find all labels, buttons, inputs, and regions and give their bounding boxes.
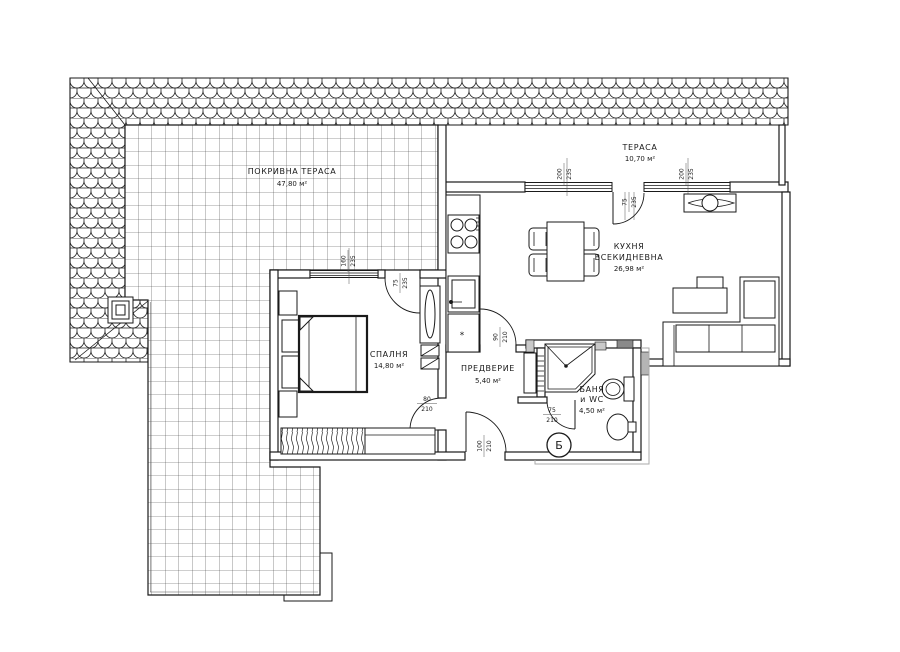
svg-text:210: 210 (486, 440, 493, 452)
window-bedroom (310, 271, 378, 278)
section-marker: Б (547, 433, 571, 457)
svg-text:4,50 м²: 4,50 м² (579, 407, 605, 415)
wall-bedroom-north-b (378, 270, 385, 278)
wardrobe (281, 428, 435, 454)
svg-text:235: 235 (631, 196, 638, 208)
window-terrace-right (644, 183, 730, 192)
svg-text:БАНЯ: БАНЯ (580, 385, 605, 394)
kitchen-sink (448, 276, 479, 312)
pier-east-shaft (641, 352, 649, 375)
wall-divider-upper (438, 125, 446, 398)
svg-text:47,80 м²: 47,80 м² (277, 180, 308, 188)
svg-text:210: 210 (421, 406, 433, 413)
svg-text:210: 210 (546, 417, 558, 424)
toilet (602, 377, 634, 401)
svg-text:10,70 м²: 10,70 м² (625, 155, 656, 163)
wall-kitchen-north-left (443, 182, 525, 192)
floor-plan-drawing: * (0, 0, 900, 652)
svg-text:160: 160 (341, 255, 348, 267)
cabinet-mirror (425, 290, 435, 338)
nightstand (282, 320, 299, 352)
radiator-living (684, 194, 736, 212)
bed (299, 316, 367, 392)
svg-text:КУХНЯ: КУХНЯ (614, 242, 645, 251)
boiler-symbol: * (460, 331, 465, 341)
wall-bedroom-north-c (420, 270, 446, 278)
wall-east-exterior (782, 192, 790, 366)
kitchen-cabinet-boiler: * (448, 314, 479, 352)
room-label-bathroom: БАНЯ и WC 4,50 м² (579, 385, 605, 415)
svg-text:СПАЛНЯ: СПАЛНЯ (370, 350, 408, 359)
svg-text:5,40 м²: 5,40 м² (475, 377, 501, 385)
nightstand (282, 356, 299, 388)
svg-text:200: 200 (557, 168, 564, 180)
wall-niche-bottom (279, 391, 297, 417)
svg-text:80: 80 (423, 396, 431, 403)
svg-text:100: 100 (477, 440, 484, 452)
svg-text:235: 235 (402, 277, 409, 289)
stove (448, 215, 479, 253)
svg-text:235: 235 (566, 168, 573, 180)
svg-text:14,80 м²: 14,80 м² (374, 362, 405, 370)
svg-text:235: 235 (688, 168, 695, 180)
wall-south-bath (505, 452, 641, 460)
floor-plan-canvas: * (0, 0, 900, 652)
pier-shower-corner (595, 342, 606, 350)
svg-text:ПОКРИВНА ТЕРАСА: ПОКРИВНА ТЕРАСА (248, 167, 337, 176)
section-marker-letter: Б (555, 439, 563, 452)
svg-text:и WC: и WC (580, 395, 604, 404)
svg-text:ТЕРАСА: ТЕРАСА (622, 143, 658, 152)
svg-text:75: 75 (393, 279, 400, 287)
chimney (108, 297, 133, 323)
window-terrace-left (525, 183, 612, 192)
wall-terrace-east (779, 125, 785, 185)
wall-bathroom-west (537, 348, 545, 397)
pier-bath-northwest (526, 340, 534, 352)
wall-bedroom-west (270, 270, 278, 460)
svg-text:ВСЕКИДНЕВНА: ВСЕКИДНЕВНА (595, 253, 664, 262)
svg-text:90: 90 (493, 333, 500, 341)
svg-text:210: 210 (502, 331, 509, 343)
pier-bath-northeast (617, 340, 633, 348)
wall-niche-top (279, 291, 297, 315)
sink-faucet (628, 422, 636, 432)
dining-table (547, 222, 584, 281)
svg-text:ПРЕДВЕРИЕ: ПРЕДВЕРИЕ (461, 364, 515, 373)
svg-text:200: 200 (679, 168, 686, 180)
svg-text:75: 75 (548, 407, 556, 414)
wall-bathroom-entry-stub (518, 397, 547, 403)
svg-text:26,98 м²: 26,98 м² (614, 265, 645, 273)
svg-text:75: 75 (622, 198, 629, 206)
kitchen-counter: * (446, 195, 480, 352)
svg-text:235: 235 (350, 255, 357, 267)
